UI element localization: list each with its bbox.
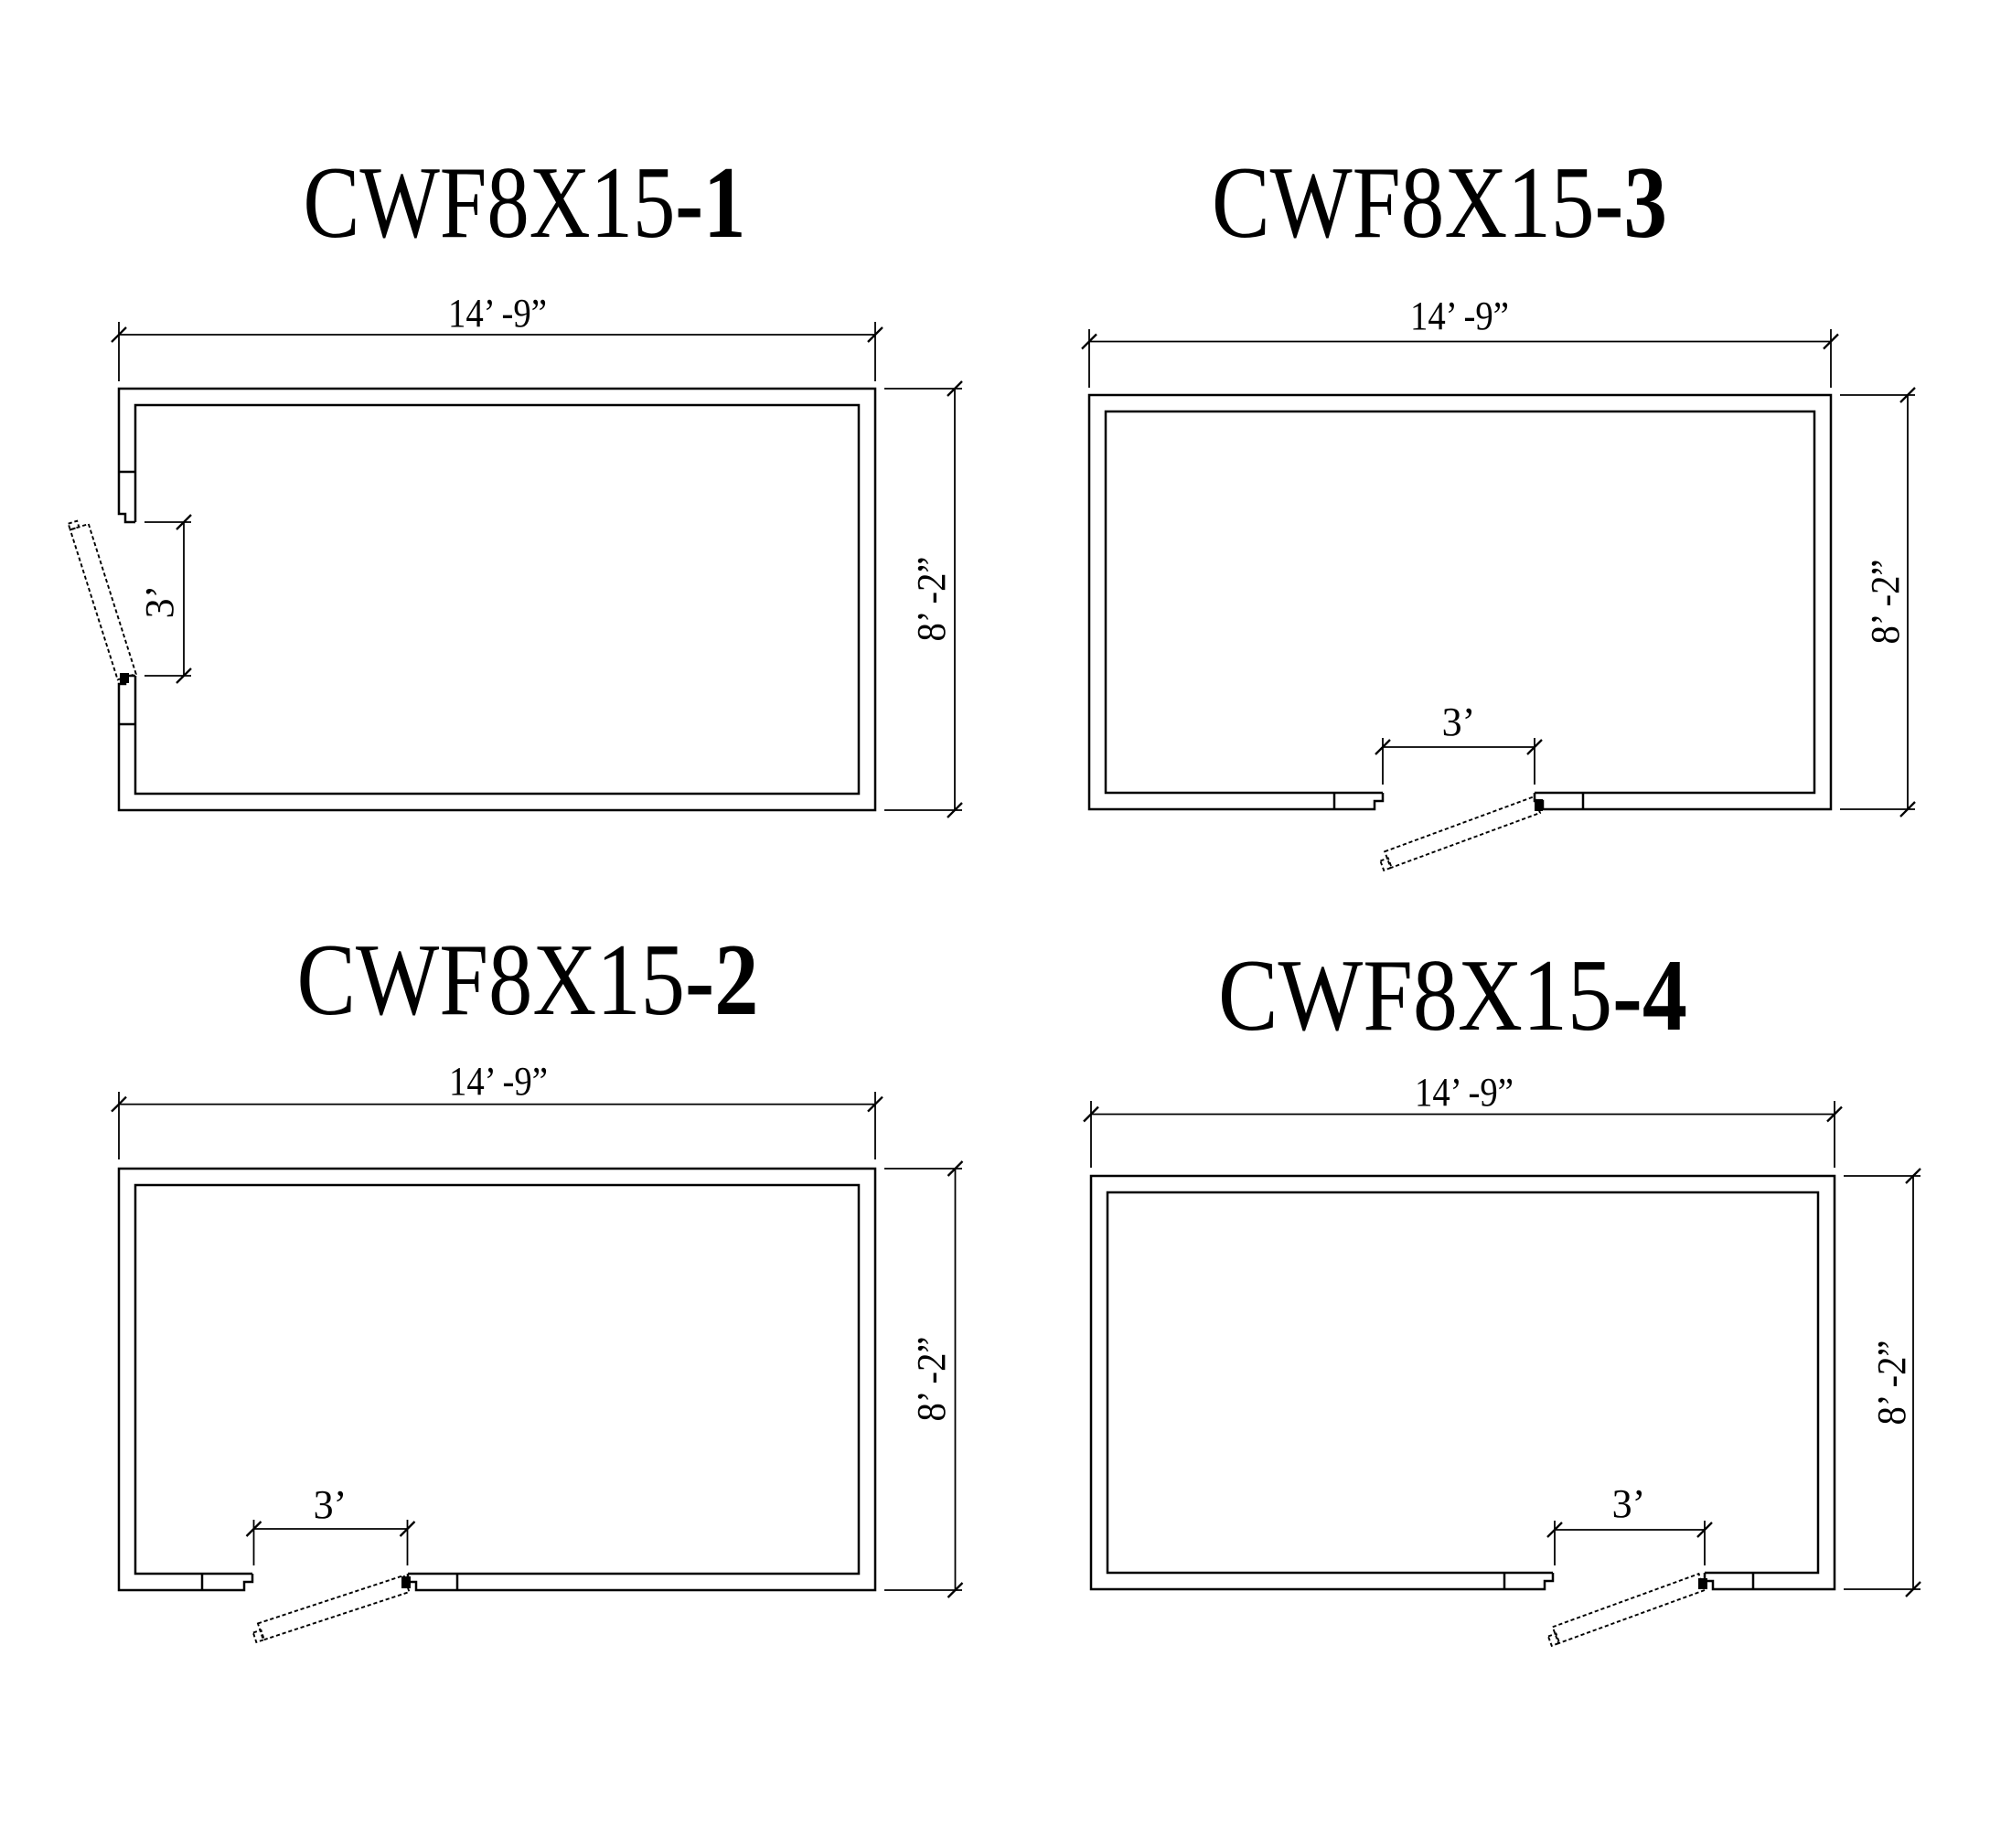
svg-text:3’: 3’ (1612, 1481, 1646, 1526)
svg-text:3’: 3’ (314, 1482, 348, 1527)
svg-text:CWF8X15-4: CWF8X15-4 (1218, 939, 1687, 1052)
svg-text:8’ -2”: 8’ -2” (1863, 560, 1908, 645)
svg-text:8’ -2”: 8’ -2” (1869, 1341, 1914, 1426)
svg-text:8’ -2”: 8’ -2” (909, 1337, 954, 1422)
svg-text:14’ -9”: 14’ -9” (1415, 1070, 1514, 1115)
svg-text:CWF8X15-2: CWF8X15-2 (297, 924, 759, 1037)
svg-text:3’: 3’ (137, 585, 182, 619)
svg-text:14’ -9”: 14’ -9” (1410, 294, 1509, 338)
svg-text:14’ -9”: 14’ -9” (449, 1059, 548, 1104)
svg-text:14’ -9”: 14’ -9” (448, 291, 547, 336)
svg-text:CWF8X15-3: CWF8X15-3 (1212, 146, 1667, 260)
svg-text:CWF8X15-1: CWF8X15-1 (304, 146, 746, 260)
svg-text:3’: 3’ (1442, 700, 1476, 744)
svg-text:8’ -2”: 8’ -2” (909, 557, 954, 642)
